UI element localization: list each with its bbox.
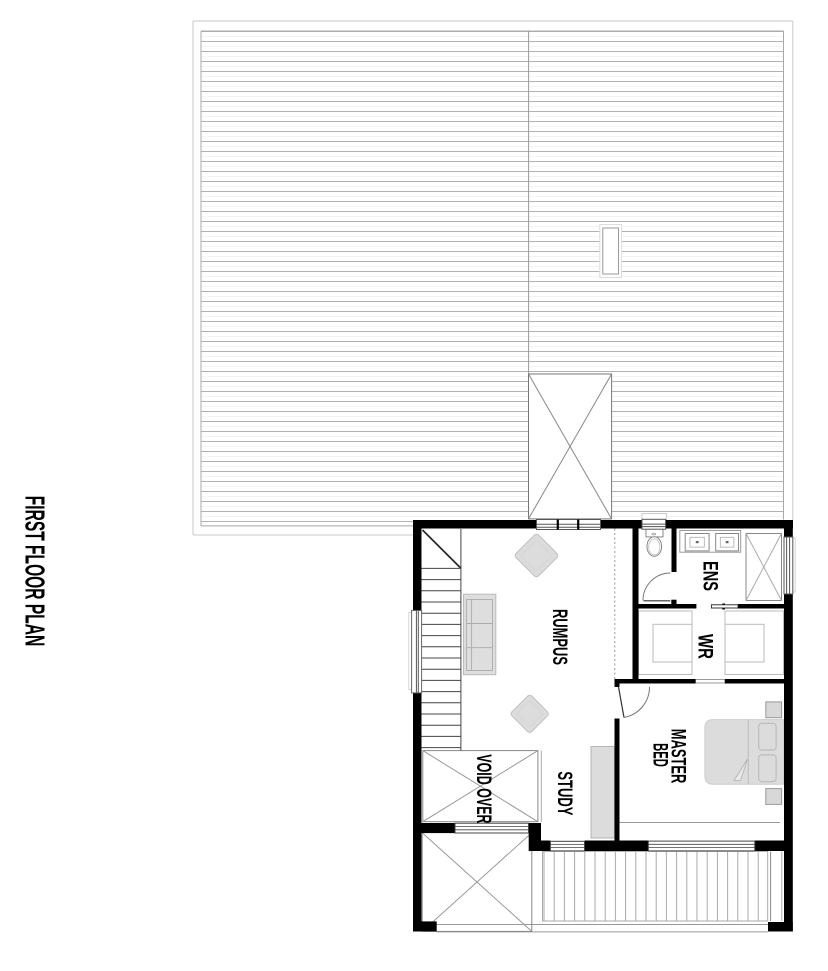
svg-text:BED: BED (648, 743, 672, 767)
svg-text:STUDY: STUDY (553, 771, 577, 815)
svg-text:ENS: ENS (699, 561, 723, 591)
svg-text:FIRST FLOOR PLAN: FIRST FLOOR PLAN (19, 496, 50, 647)
svg-text:WR: WR (694, 634, 718, 659)
svg-text:RUMPUS: RUMPUS (548, 609, 572, 665)
svg-text:VOID OVER: VOID OVER (472, 754, 496, 824)
